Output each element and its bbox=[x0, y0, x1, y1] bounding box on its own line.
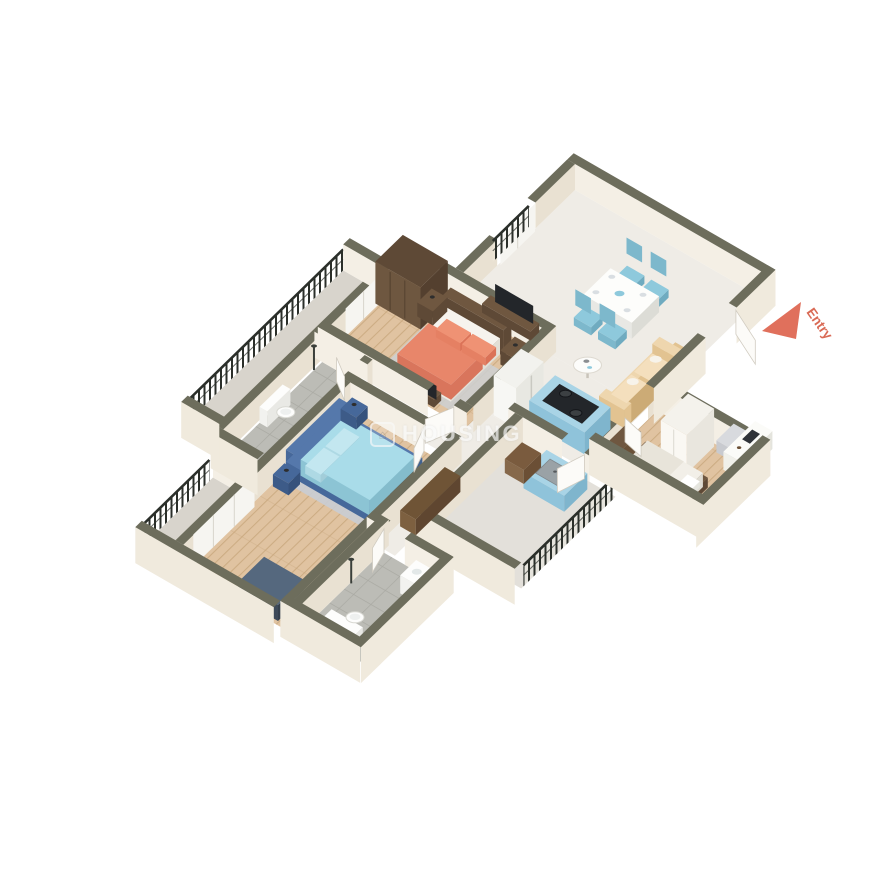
floorplan-scene: Entry bbox=[0, 0, 870, 870]
entry-marker: Entry bbox=[762, 302, 836, 342]
floorplan-3d-render: Entry ⌂ HOUSING bbox=[0, 0, 870, 870]
entry-label: Entry bbox=[804, 305, 836, 342]
